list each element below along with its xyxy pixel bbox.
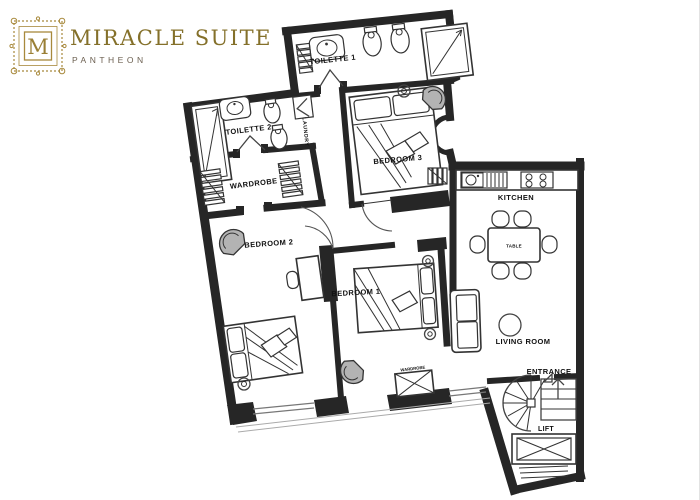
toilette1-fixtures [296,23,473,80]
entrance-area: LIFT [503,375,576,478]
spiral-staircase-icon [503,375,545,431]
sofa-icon [450,289,481,352]
brand-title: MIRACLE SUITE [70,26,272,50]
kitchen-furniture: TABLE [456,170,578,279]
logo-monogram: M [27,35,49,59]
bidet-icon [361,26,382,57]
lift: LIFT [512,426,576,464]
brand-logo: M MIRACLE SUITE PANTHEON [10,17,272,75]
dining-table-set: TABLE [470,211,557,279]
kitchen-sink-icon [461,172,507,188]
rack-icon [278,161,303,197]
straight-stairs-icon [541,379,576,420]
windows [236,387,490,432]
wardrobe-room-label: WARDROBE [229,176,278,191]
living-room-label: LIVING ROOM [496,337,551,346]
floorplan-page: M MIRACLE SUITE PANTHEON [0,0,700,500]
floorplan-canvas: M MIRACLE SUITE PANTHEON [0,0,700,500]
table-label: TABLE [506,244,522,249]
rack-icon [200,169,225,205]
toilet-icon [269,124,288,150]
shower-icon [421,23,473,80]
bed-icon [223,316,302,382]
bidet-icon [262,98,281,124]
wall-lamp-icon [425,329,436,340]
toilet-icon [389,23,410,54]
bedroom2-label: BEDROOM 2 [244,237,294,249]
laundry-label: LAUNDRY [300,117,309,147]
bedroom2-furniture [214,224,324,390]
wardrobe-unit: WARDROBE [394,364,434,397]
kitchen-label: KITCHEN [498,193,534,202]
desk-and-chair [284,256,324,302]
brand-subtitle: PANTHEON [72,55,147,65]
entry-steps-icon [519,466,568,478]
entrance-label: ENTRANCE [527,367,572,376]
bed-icon [354,263,438,332]
bedroom3-furniture [349,81,451,194]
sink-icon [219,96,252,121]
laundry-closet [293,95,314,119]
pouf-icon [499,314,521,336]
toilette2-label: TOILETTE 2 [225,122,272,137]
bedroom1-furniture: WARDROBE [335,256,438,397]
stove-icon [521,172,553,188]
radiator-icon [428,168,447,184]
lift-label: LIFT [538,426,554,433]
